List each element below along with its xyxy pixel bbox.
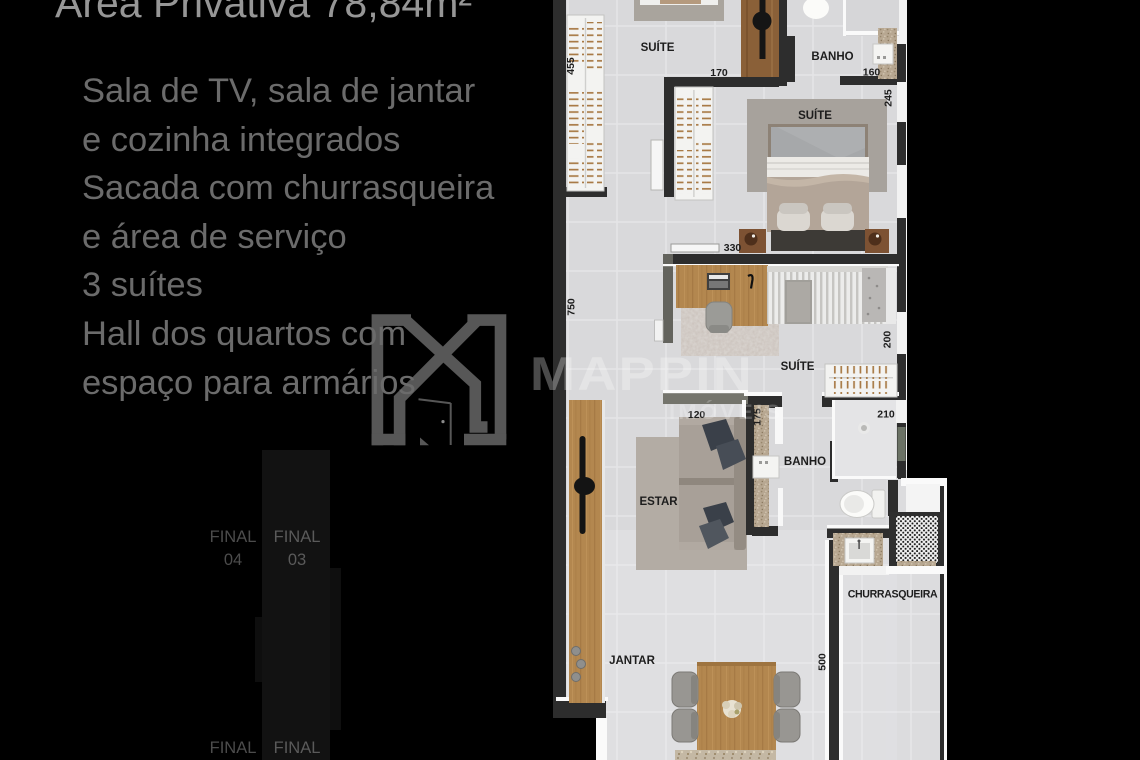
svg-text:BANHO: BANHO (784, 456, 826, 468)
svg-text:750: 750 (566, 298, 578, 316)
svg-text:SUÍTE: SUÍTE (781, 360, 815, 373)
svg-text:160: 160 (863, 67, 881, 79)
svg-text:245: 245 (883, 89, 895, 107)
svg-text:SUÍTE: SUÍTE (641, 41, 675, 54)
svg-text:200: 200 (882, 331, 894, 349)
svg-text:CHURRASQUEIRA: CHURRASQUEIRA (848, 589, 938, 601)
svg-text:455: 455 (565, 57, 577, 75)
svg-text:SUÍTE: SUÍTE (798, 109, 832, 122)
svg-text:500: 500 (817, 653, 829, 671)
svg-text:210: 210 (877, 409, 895, 421)
svg-text:170: 170 (710, 67, 728, 79)
svg-text:BANHO: BANHO (811, 51, 853, 63)
svg-text:ESTAR: ESTAR (639, 496, 678, 508)
svg-text:330: 330 (724, 242, 742, 254)
svg-text:JANTAR: JANTAR (609, 655, 655, 667)
